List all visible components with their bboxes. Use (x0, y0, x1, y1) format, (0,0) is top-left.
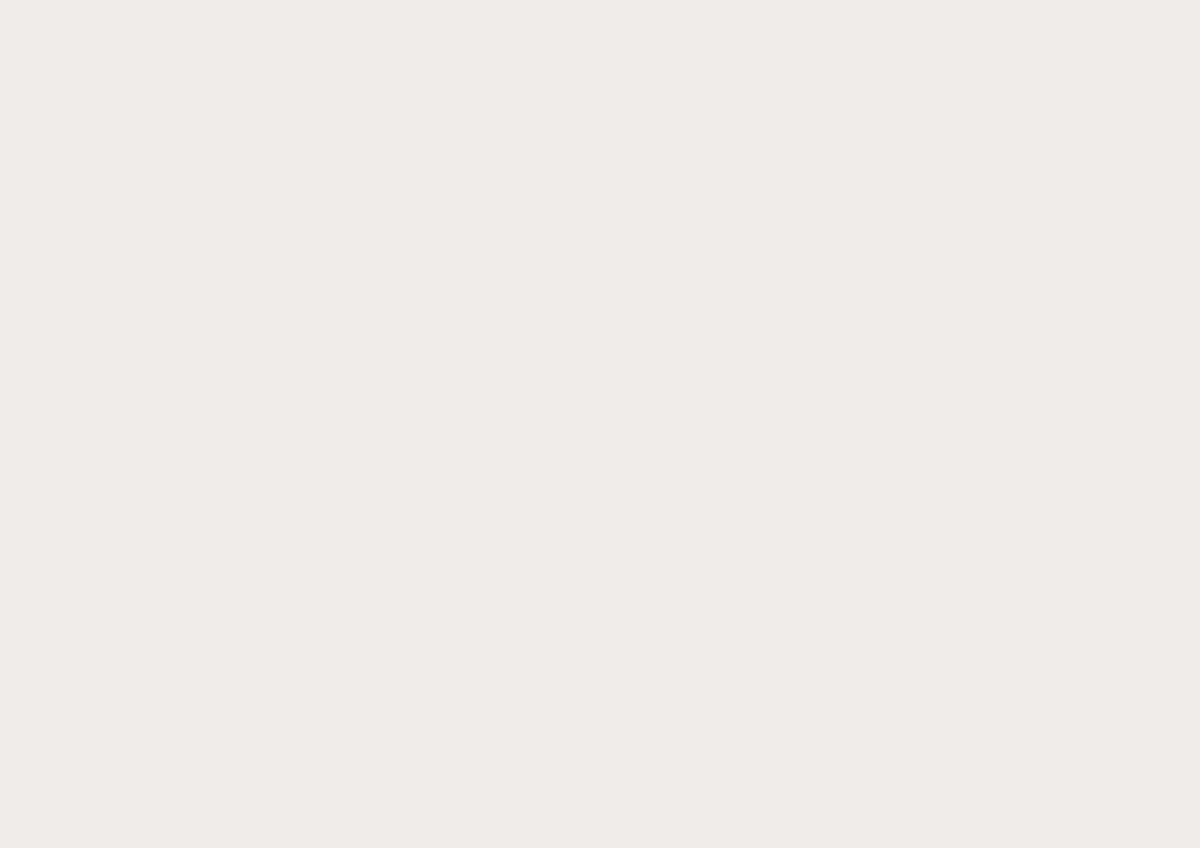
masterplan-map: Illustrated aerial masterplan of a river… (0, 0, 1200, 848)
masterplan-svg: Illustrated aerial masterplan of a river… (0, 0, 1200, 848)
